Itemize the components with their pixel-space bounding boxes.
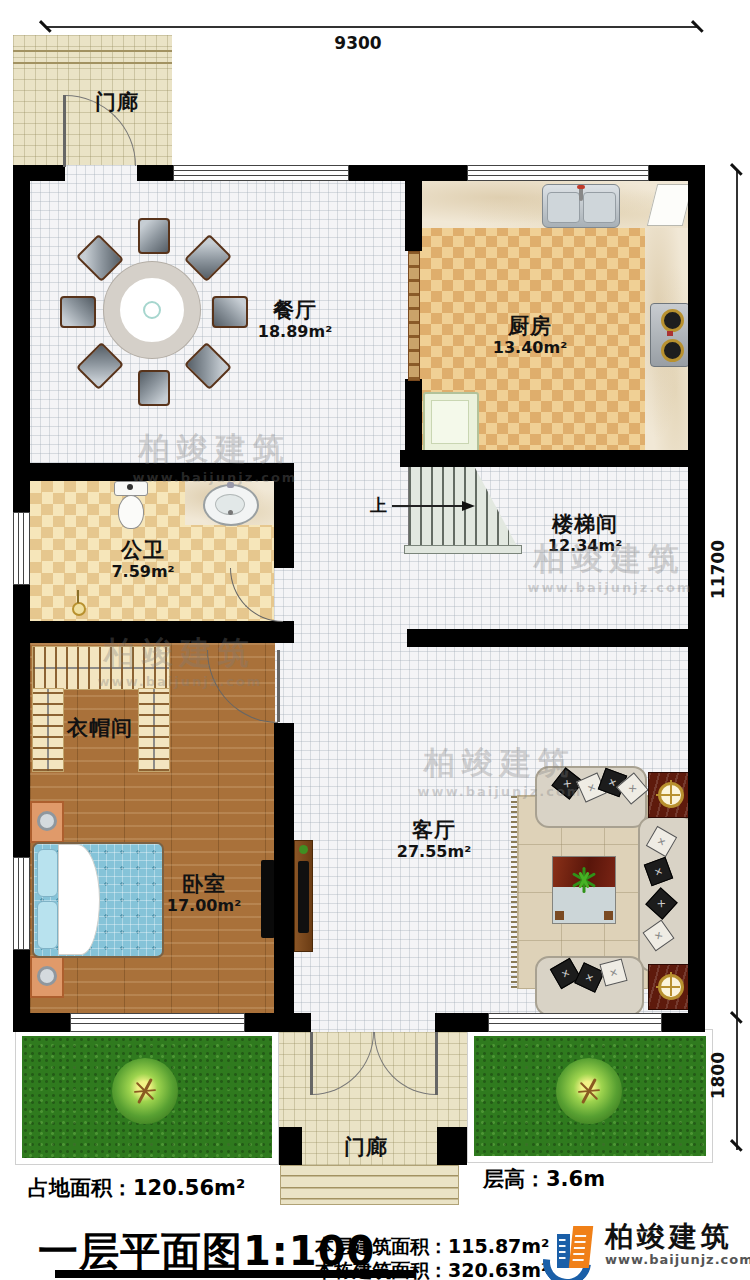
window — [488, 1013, 662, 1032]
stair-direction-arrow-icon — [462, 501, 475, 511]
wall — [688, 181, 705, 1013]
wall — [13, 165, 65, 181]
toilet-icon — [114, 481, 146, 529]
bed-pillow — [37, 901, 58, 949]
room-label-cloakroom: 衣帽间 — [40, 716, 160, 740]
dining-chair — [138, 218, 170, 254]
dimension-line-top — [45, 26, 697, 28]
wall — [660, 1013, 705, 1032]
dimension-garden-label: 1800 — [708, 1052, 728, 1099]
dimension-right-label: 11700 — [708, 540, 728, 599]
plant-icon — [569, 865, 599, 895]
floor-area-text: 本层建筑面积：115.87m² — [315, 1234, 549, 1260]
door-leaf — [310, 1032, 313, 1095]
nightstand — [30, 956, 64, 998]
sliding-door — [408, 251, 420, 381]
room-label-porch-bottom: 门廊 — [306, 1135, 426, 1159]
tv-cabinet — [294, 840, 313, 952]
wall — [347, 165, 467, 181]
staircase-rail — [404, 545, 522, 554]
kitchen-sink-icon — [542, 184, 620, 228]
dimension-line-right — [736, 170, 738, 1150]
coffee-table — [552, 856, 616, 924]
room-label-bathroom: 公卫 7.59m² — [83, 538, 203, 581]
window — [173, 165, 349, 181]
porch-top-step-lines — [13, 50, 172, 64]
wall — [405, 181, 422, 251]
wall — [137, 165, 173, 181]
wardrobe-rack-top — [32, 646, 170, 690]
room-label-porch-top: 门廊 — [57, 90, 177, 114]
dining-chair — [60, 296, 96, 328]
room-label-living: 客厅 27.55m² — [374, 818, 494, 861]
room-label-kitchen: 厨房 13.40m² — [470, 314, 590, 357]
bathroom-sink-icon — [203, 484, 259, 526]
lamp-icon — [658, 782, 684, 808]
wall — [435, 1013, 488, 1032]
porch-bottom-steps — [280, 1165, 459, 1205]
window — [13, 857, 30, 950]
floor-drain-icon — [72, 602, 86, 616]
porch-pillar-right — [437, 1127, 467, 1165]
garden-right — [468, 1030, 712, 1162]
dining-table — [104, 262, 200, 358]
door-leaf — [435, 1032, 438, 1095]
wall — [647, 165, 705, 181]
bed-blanket — [58, 844, 100, 955]
wall — [13, 463, 294, 481]
garden-left — [16, 1030, 278, 1164]
bed-pillow — [37, 849, 58, 897]
gas-stove-icon — [650, 303, 690, 367]
lamp-icon — [658, 974, 684, 1000]
room-label-dining: 餐厅 18.89m² — [235, 298, 355, 341]
wall — [13, 621, 294, 643]
building-area-text: 本栋建筑面积：320.63m² — [315, 1258, 549, 1280]
living-tv-icon — [298, 861, 309, 933]
tree-icon — [112, 1058, 178, 1124]
brand-website: www.baijunjz.com — [605, 1252, 750, 1267]
window — [13, 512, 30, 585]
brand-logo: 柏竣建筑 www.baijunjz.com — [543, 1222, 743, 1280]
dining-chair — [138, 370, 170, 406]
brand-logo-icon — [543, 1224, 599, 1278]
wall — [243, 1013, 311, 1032]
stair-up-label: 上 — [370, 494, 387, 517]
floor-height-text: 层高：3.6m — [483, 1165, 605, 1193]
wall — [274, 481, 294, 568]
site-area-text: 占地面积：120.56m² — [28, 1174, 245, 1202]
brand-name: 柏竣建筑 — [605, 1222, 750, 1252]
nightstand — [30, 801, 64, 843]
stair-direction-line — [392, 505, 464, 507]
wall — [13, 1013, 70, 1032]
wall — [407, 629, 688, 647]
tree-icon — [556, 1058, 622, 1124]
floor-plan: 上 — [0, 0, 750, 1280]
room-label-bedroom: 卧室 17.00m² — [144, 872, 264, 915]
window — [70, 1013, 245, 1032]
room-label-stairwell: 楼梯间 12.34m² — [525, 512, 645, 555]
wall — [274, 723, 294, 1013]
wall — [400, 450, 705, 467]
wall — [13, 948, 30, 1013]
door-leaf — [277, 650, 280, 722]
fridge-icon — [423, 392, 479, 454]
window — [467, 165, 649, 181]
dimension-top-label: 9300 — [318, 33, 398, 53]
